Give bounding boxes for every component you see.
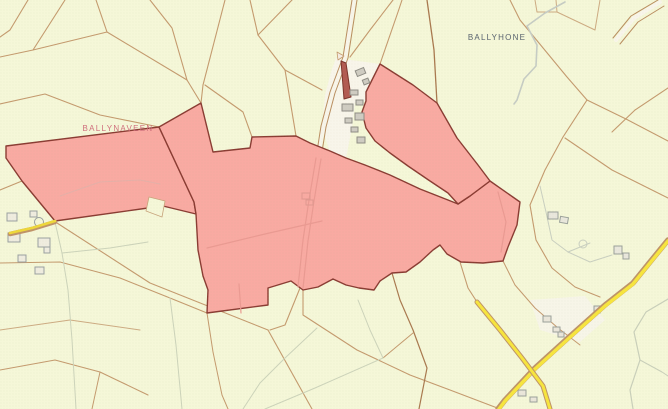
outline-building	[7, 213, 17, 221]
farm-building	[350, 90, 358, 95]
outline-building	[614, 246, 622, 254]
outline-building	[44, 247, 50, 253]
farm-building	[355, 113, 364, 120]
townland-label-ballynaveen: BALLYNAVEEN	[83, 124, 154, 133]
hamlet-building	[558, 332, 564, 337]
outline-building	[35, 267, 44, 274]
outline-building	[30, 211, 37, 217]
map-svg[interactable]: BALLYHONEBALLYNAVEEN	[0, 0, 668, 409]
outline-building	[548, 212, 558, 219]
hamlet-building	[530, 397, 537, 402]
outline-building	[38, 238, 50, 247]
farm-building	[342, 104, 353, 111]
outline-building	[18, 255, 26, 262]
townland-label-ballyhone: BALLYHONE	[468, 33, 526, 42]
hamlet-building	[518, 390, 526, 396]
farm-building	[345, 118, 352, 123]
cadastral-map-viewport[interactable]: BALLYHONEBALLYNAVEEN	[0, 0, 668, 409]
farm-building	[351, 127, 358, 132]
farm-building	[356, 100, 363, 105]
outline-building	[560, 216, 569, 223]
outline-building	[623, 253, 629, 259]
hamlet-building	[543, 316, 551, 322]
hamlet-building	[553, 327, 560, 332]
farm-building	[357, 137, 365, 143]
